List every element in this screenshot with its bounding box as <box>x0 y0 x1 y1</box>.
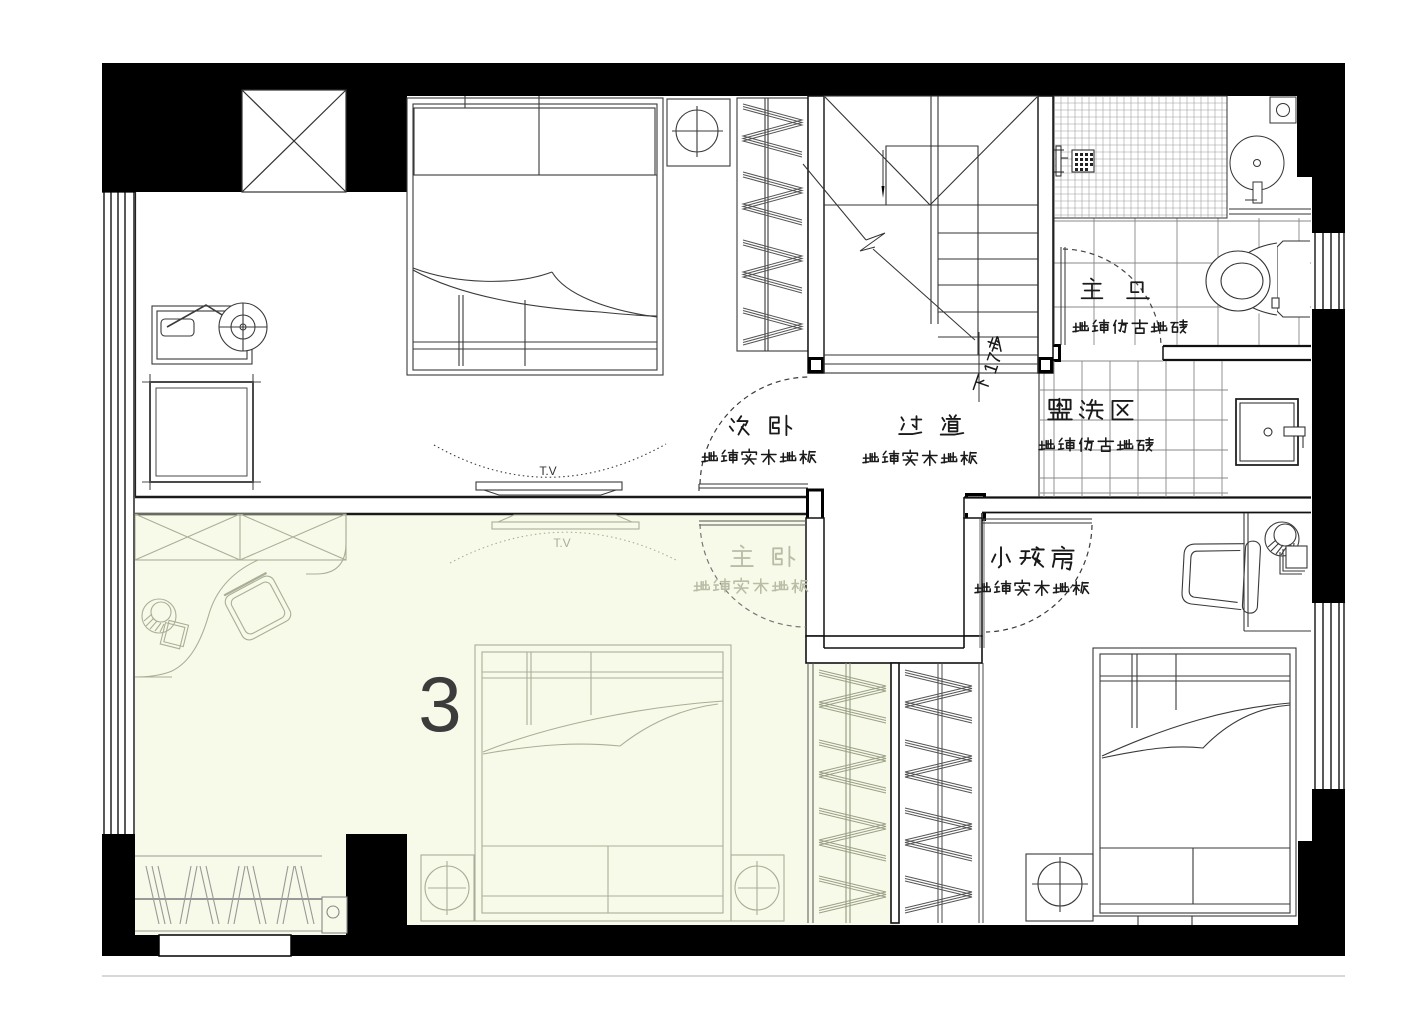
svg-text:T.V: T.V <box>539 464 556 478</box>
svg-text:T.V: T.V <box>553 536 570 550</box>
svg-text:3: 3 <box>418 660 461 748</box>
